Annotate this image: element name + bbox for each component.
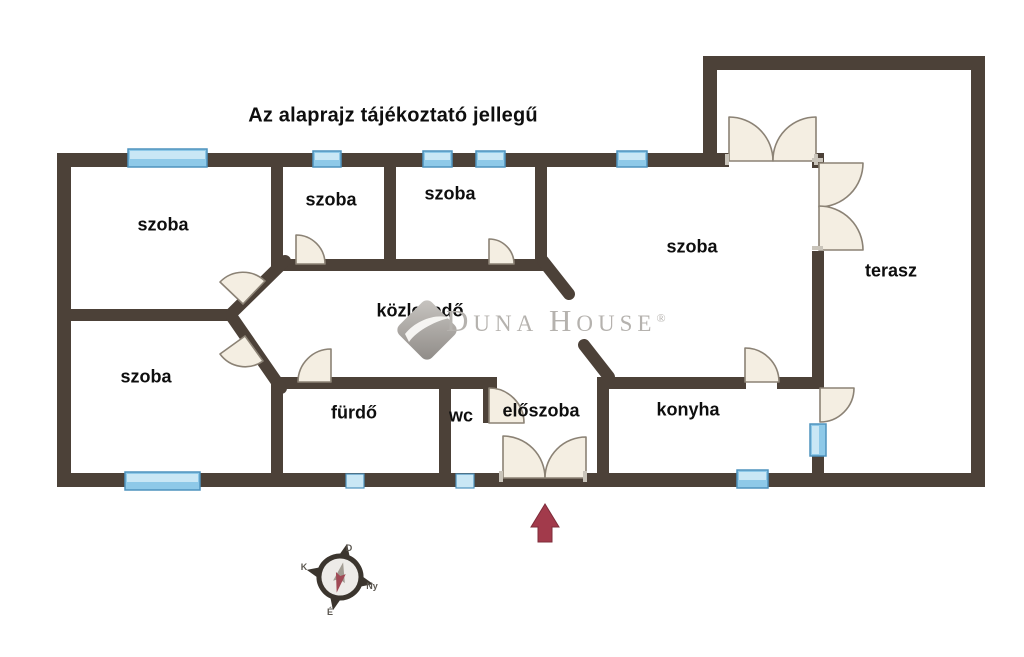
door-jamb bbox=[499, 471, 503, 482]
brand-letter: H bbox=[549, 303, 576, 338]
window bbox=[737, 470, 768, 488]
room-label-szoba-right: szoba bbox=[666, 237, 717, 258]
entrance-arrow-icon bbox=[531, 504, 559, 542]
window bbox=[456, 474, 474, 488]
door-arc-szoba-right bbox=[745, 348, 779, 382]
door-jamb bbox=[812, 158, 823, 162]
compass-label-north: É bbox=[327, 607, 333, 617]
door-arc-furdo bbox=[298, 349, 331, 382]
room-label-terasz: terasz bbox=[865, 261, 917, 282]
door-arc-szoba-top-mid2 bbox=[489, 239, 514, 264]
door-arc-szoba-top-mid bbox=[296, 235, 325, 264]
window bbox=[125, 472, 200, 490]
room-label-wc: wc bbox=[449, 406, 473, 427]
room-label-szoba-top-left: szoba bbox=[137, 215, 188, 236]
window bbox=[346, 474, 364, 488]
compass-label-south: D bbox=[346, 543, 353, 553]
window bbox=[476, 151, 505, 167]
door-jamb bbox=[725, 154, 729, 165]
door-jamb bbox=[583, 471, 587, 482]
compass-label-west: Ny bbox=[366, 581, 378, 591]
door-arc-szoba-bottom-left bbox=[220, 336, 263, 367]
entrance-door-left-leaf bbox=[503, 436, 545, 478]
window bbox=[423, 151, 452, 167]
window bbox=[810, 424, 826, 456]
floor-plan: Az alaprajz tájékoztató jellegű szoba sz… bbox=[0, 0, 1024, 657]
entrance-door-right-leaf bbox=[545, 437, 586, 478]
door-jamb bbox=[812, 246, 823, 250]
brand-space bbox=[538, 311, 549, 336]
door-arc-szoba-top-left bbox=[220, 272, 265, 304]
window bbox=[128, 149, 207, 167]
brand-letter: D bbox=[446, 303, 473, 338]
room-label-szoba-top-mid: szoba bbox=[305, 190, 356, 211]
french-door-terasz-side-lower-leaf bbox=[819, 206, 863, 250]
compass-label-east: K bbox=[301, 562, 308, 572]
french-door-terasz-side-upper-leaf bbox=[819, 163, 863, 207]
window bbox=[617, 151, 647, 167]
french-door-terasz-top-left-leaf bbox=[729, 117, 773, 161]
brand-letters: UNA bbox=[473, 311, 538, 336]
room-label-szoba-top-mid2: szoba bbox=[424, 184, 475, 205]
room-label-eloszoba: előszoba bbox=[502, 401, 579, 422]
brand-letters: OUSE bbox=[576, 311, 656, 336]
page-title: Az alaprajz tájékoztató jellegű bbox=[248, 105, 538, 128]
french-door-terasz-top-right-leaf bbox=[773, 117, 816, 161]
door-arc-konyha-terasz bbox=[820, 388, 854, 422]
registered-mark-icon: ® bbox=[656, 311, 665, 325]
room-label-furdo: fürdő bbox=[331, 403, 377, 424]
compass-rose-icon bbox=[300, 537, 381, 618]
window bbox=[313, 151, 341, 167]
brand-watermark: DUNA HOUSE® bbox=[446, 303, 666, 339]
room-label-szoba-bottom-left: szoba bbox=[120, 367, 171, 388]
room-label-konyha: konyha bbox=[656, 400, 719, 421]
